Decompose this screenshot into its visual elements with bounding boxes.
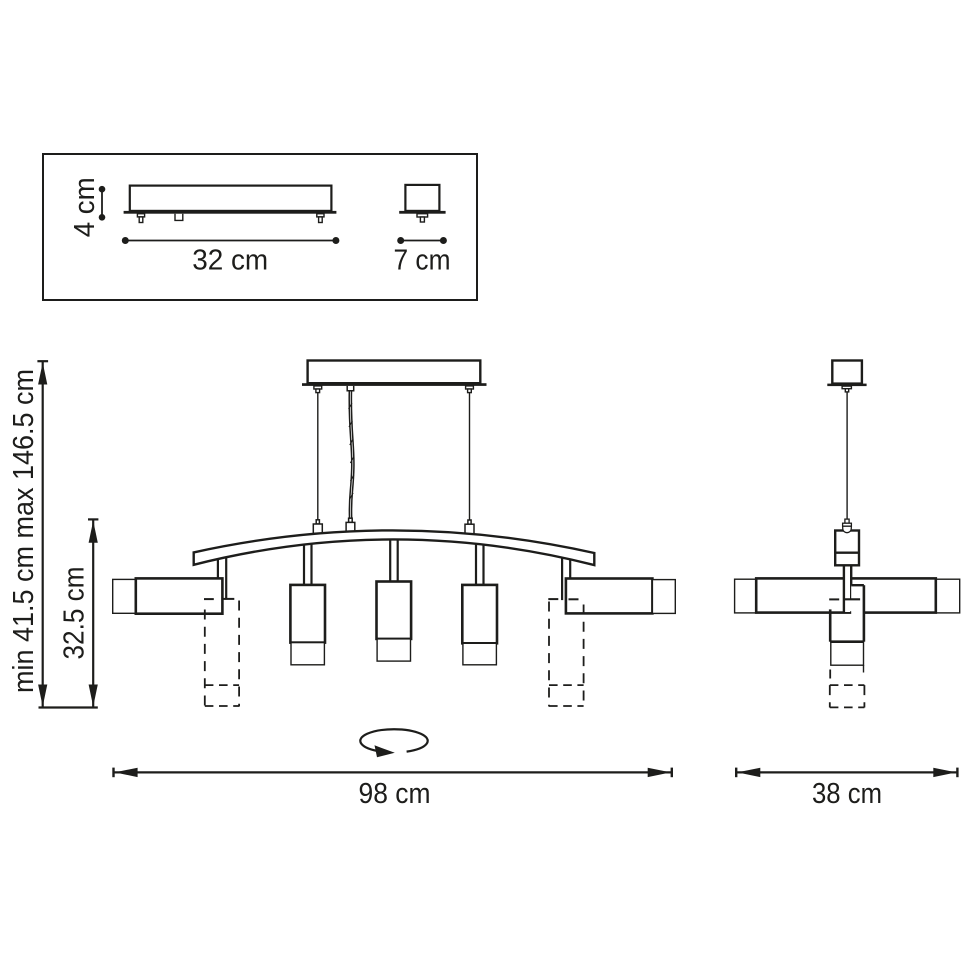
svg-text:4 cm: 4 cm [69,177,101,237]
svg-text:32.5 cm: 32.5 cm [59,567,91,660]
svg-text:38 cm: 38 cm [812,778,882,810]
svg-text:32 cm: 32 cm [192,245,268,277]
svg-text:98 cm: 98 cm [359,778,431,810]
svg-text:min 41.5 cm max 146.5 cm: min 41.5 cm max 146.5 cm [8,369,40,693]
svg-text:7 cm: 7 cm [394,245,451,277]
